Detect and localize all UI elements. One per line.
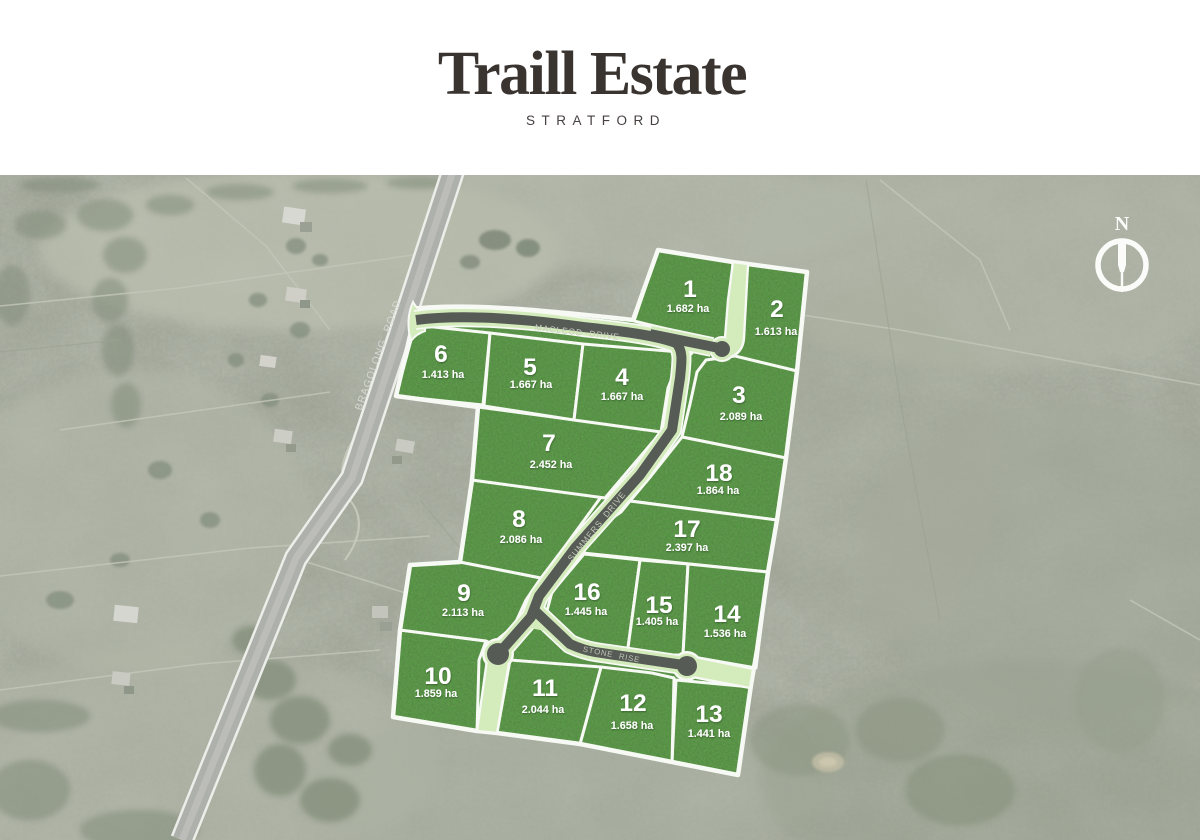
svg-text:1.405 ha: 1.405 ha [636,616,680,628]
svg-text:2.089 ha: 2.089 ha [720,411,764,423]
svg-text:1.445 ha: 1.445 ha [565,606,609,618]
svg-text:7: 7 [542,430,556,457]
svg-text:N: N [1115,213,1130,235]
svg-text:2.397 ha: 2.397 ha [666,542,710,554]
svg-text:8: 8 [512,506,526,533]
svg-text:Traill Estate: Traill Estate [438,40,746,108]
svg-text:17: 17 [673,516,700,543]
svg-text:15: 15 [645,592,672,619]
svg-text:1.667 ha: 1.667 ha [510,379,554,391]
svg-text:18: 18 [705,460,732,487]
svg-text:9: 9 [457,580,471,607]
svg-text:1.413 ha: 1.413 ha [422,369,466,381]
svg-text:12: 12 [619,690,646,717]
svg-text:5: 5 [523,354,537,381]
svg-text:1.658 ha: 1.658 ha [611,720,655,732]
svg-text:1.536 ha: 1.536 ha [704,628,748,640]
svg-text:3: 3 [732,382,746,409]
svg-text:1: 1 [683,276,697,303]
svg-text:2.113 ha: 2.113 ha [442,607,485,619]
svg-text:16: 16 [573,579,600,606]
svg-text:10: 10 [424,663,451,690]
svg-text:1.441 ha: 1.441 ha [688,728,732,740]
svg-text:2.086 ha: 2.086 ha [500,534,544,546]
svg-text:11: 11 [532,675,558,702]
svg-text:14: 14 [713,601,741,628]
svg-text:1.682 ha: 1.682 ha [667,303,711,315]
svg-text:6: 6 [434,341,448,368]
svg-text:1.864 ha: 1.864 ha [697,485,741,497]
svg-text:1.667 ha: 1.667 ha [601,391,645,403]
svg-text:1.859 ha: 1.859 ha [415,688,459,700]
svg-text:1.613 ha: 1.613 ha [755,326,799,338]
svg-text:2.452 ha: 2.452 ha [530,459,574,471]
svg-text:13: 13 [695,701,722,728]
svg-text:STRATFORD: STRATFORD [526,113,666,128]
svg-text:2.044 ha: 2.044 ha [522,704,566,716]
svg-text:2: 2 [770,296,784,323]
svg-text:4: 4 [615,364,629,391]
